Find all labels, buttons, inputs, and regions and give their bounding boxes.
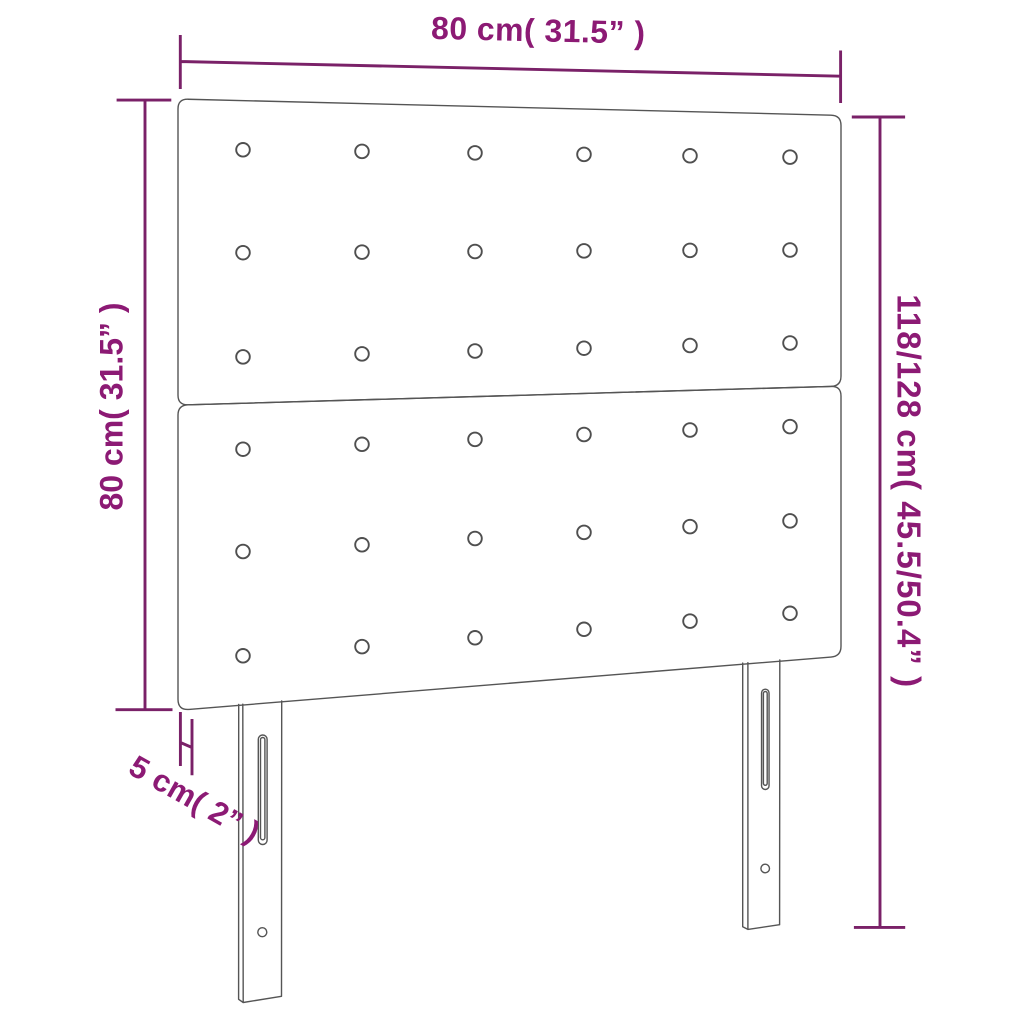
svg-text:80 cm( 31.5” ): 80 cm( 31.5” ) bbox=[431, 10, 646, 51]
svg-text:80 cm( 31.5” ): 80 cm( 31.5” ) bbox=[94, 302, 130, 510]
svg-text:118/128 cm( 45.5/50.4” ): 118/128 cm( 45.5/50.4” ) bbox=[890, 294, 927, 688]
